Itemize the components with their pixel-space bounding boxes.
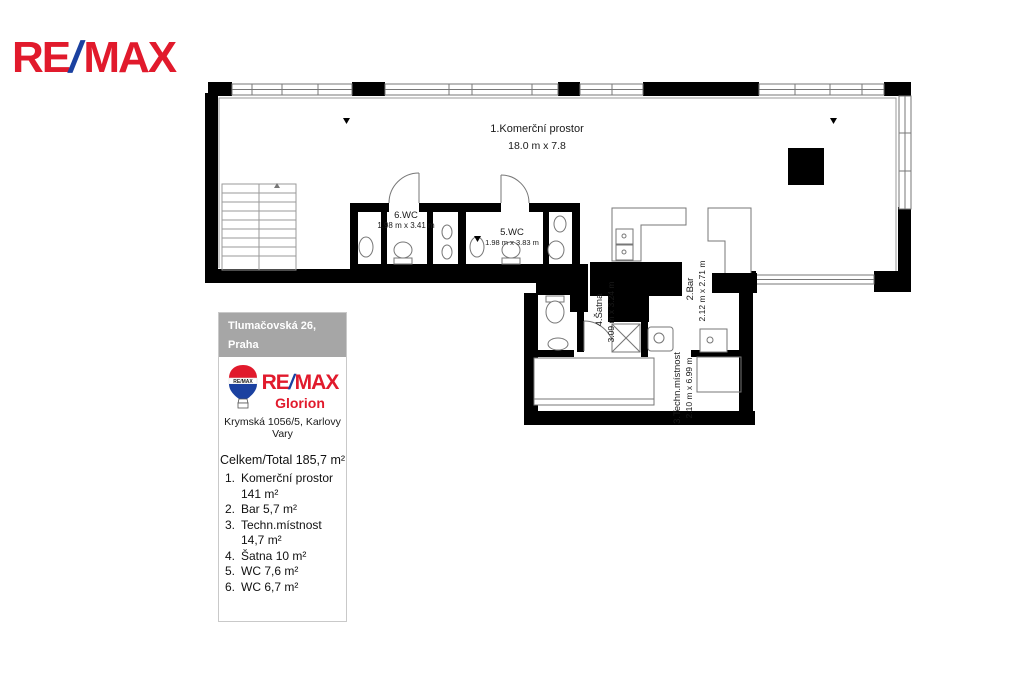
room-totals: Celkem/Total 185,7 m² 1. Komerční prosto… bbox=[219, 453, 346, 595]
list-item: 6. WC 6,7 m² bbox=[225, 580, 346, 596]
sink-icon bbox=[548, 338, 568, 350]
column bbox=[788, 148, 824, 185]
list-item: 5. WC 7,6 m² bbox=[225, 564, 346, 580]
wc-block-walls bbox=[350, 203, 580, 272]
bar-sink-icon bbox=[700, 329, 727, 352]
address-box: Tlumačovská 26, Praha bbox=[219, 313, 346, 357]
list-item: 3. Techn.místnost 14,7 m² bbox=[225, 518, 346, 549]
room-label-wc6: 6.WC bbox=[394, 210, 418, 221]
list-item: 2. Bar 5,7 m² bbox=[225, 502, 346, 518]
info-panel: Tlumačovská 26, Praha RE/MAX RE / MAX Gl… bbox=[218, 312, 347, 622]
urinal-icon bbox=[442, 225, 452, 239]
list-item: 4. Šatna 10 m² bbox=[225, 549, 346, 565]
toilet-icon bbox=[548, 241, 564, 259]
room-dims-wc5: 1.98 m x 3.83 m bbox=[485, 238, 539, 247]
address-line-1: Tlumačovská 26, bbox=[228, 320, 337, 332]
sink-icon bbox=[359, 237, 373, 257]
room-dims-bar: 2.12 m x 2.71 m bbox=[697, 261, 707, 322]
room-label-satna: 4.Šatna bbox=[594, 293, 605, 326]
window-top-2 bbox=[385, 84, 558, 95]
window-top-1 bbox=[232, 84, 352, 95]
agency-name: Glorion bbox=[275, 395, 325, 411]
room-label-bar: 2.Bar bbox=[685, 278, 696, 301]
window-bottom-right bbox=[756, 275, 874, 284]
agency-wordmark-re: RE bbox=[262, 372, 289, 393]
address-line-2: Praha bbox=[228, 339, 337, 351]
office-address: Krymská 1056/5, Karlovy Vary bbox=[219, 416, 346, 440]
tech-counter bbox=[534, 358, 654, 405]
sink-icon bbox=[554, 216, 566, 232]
urinal-icon bbox=[442, 245, 452, 259]
remax-balloon-icon: RE/MAX bbox=[227, 364, 259, 410]
staircase bbox=[222, 183, 296, 270]
window-right bbox=[899, 96, 911, 209]
door-arcs bbox=[389, 173, 529, 203]
sink-cabinet-icon bbox=[648, 327, 673, 351]
room-label-wc5: 5.WC bbox=[500, 227, 524, 238]
toilet-icon bbox=[546, 301, 564, 323]
list-item: 1. Komerční prostor 141 m² bbox=[225, 471, 346, 502]
room-label-komercni-prostor: 1.Komerční prostor bbox=[490, 123, 584, 135]
balloon-text: RE/MAX bbox=[233, 379, 253, 385]
room-dims-wc6: 1.98 m x 3.41 m bbox=[377, 221, 435, 230]
room-dims-komercni-prostor: 18.0 m x 7.8 bbox=[508, 140, 566, 152]
outer-walls bbox=[205, 82, 911, 292]
window-top-3 bbox=[580, 84, 643, 95]
totals-list: 1. Komerční prostor 141 m² 2. Bar 5,7 m²… bbox=[219, 471, 346, 595]
window-top-4 bbox=[759, 84, 884, 95]
agency-logo-block: RE/MAX RE / MAX Glorion Krymská 1056/5, … bbox=[219, 357, 346, 440]
tech-unit bbox=[697, 357, 741, 392]
room-label-techn: 3.Techn.místnost bbox=[672, 352, 683, 424]
agency-wordmark-max: MAX bbox=[295, 372, 339, 393]
toilet-icon bbox=[394, 242, 412, 258]
floor-plan: 1.Komerční prostor 18.0 m x 7.8 6.WC 1.9… bbox=[0, 0, 1024, 682]
totals-title: Celkem/Total 185,7 m² bbox=[219, 453, 346, 467]
room-dims-techn: 2.10 m x 6.99 m bbox=[684, 358, 694, 419]
room-dims-satna: 3.09 m x 3.24 m bbox=[606, 282, 616, 343]
agency-wordmark: RE / MAX bbox=[262, 372, 339, 393]
